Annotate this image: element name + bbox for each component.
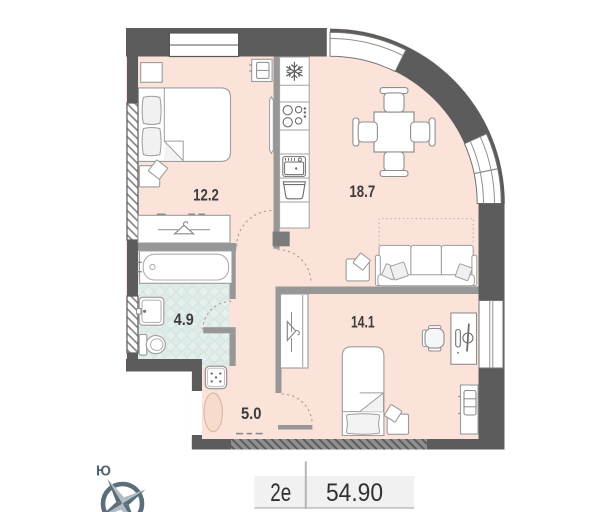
svg-text:Ю: Ю <box>96 464 111 480</box>
svg-text:4.9: 4.9 <box>174 311 194 329</box>
svg-text:2е: 2е <box>270 479 291 507</box>
svg-text:5.0: 5.0 <box>241 405 262 423</box>
svg-text:14.1: 14.1 <box>351 314 375 332</box>
svg-text:54.90: 54.90 <box>326 479 383 507</box>
svg-text:12.2: 12.2 <box>193 187 219 205</box>
svg-text:18.7: 18.7 <box>349 183 375 201</box>
